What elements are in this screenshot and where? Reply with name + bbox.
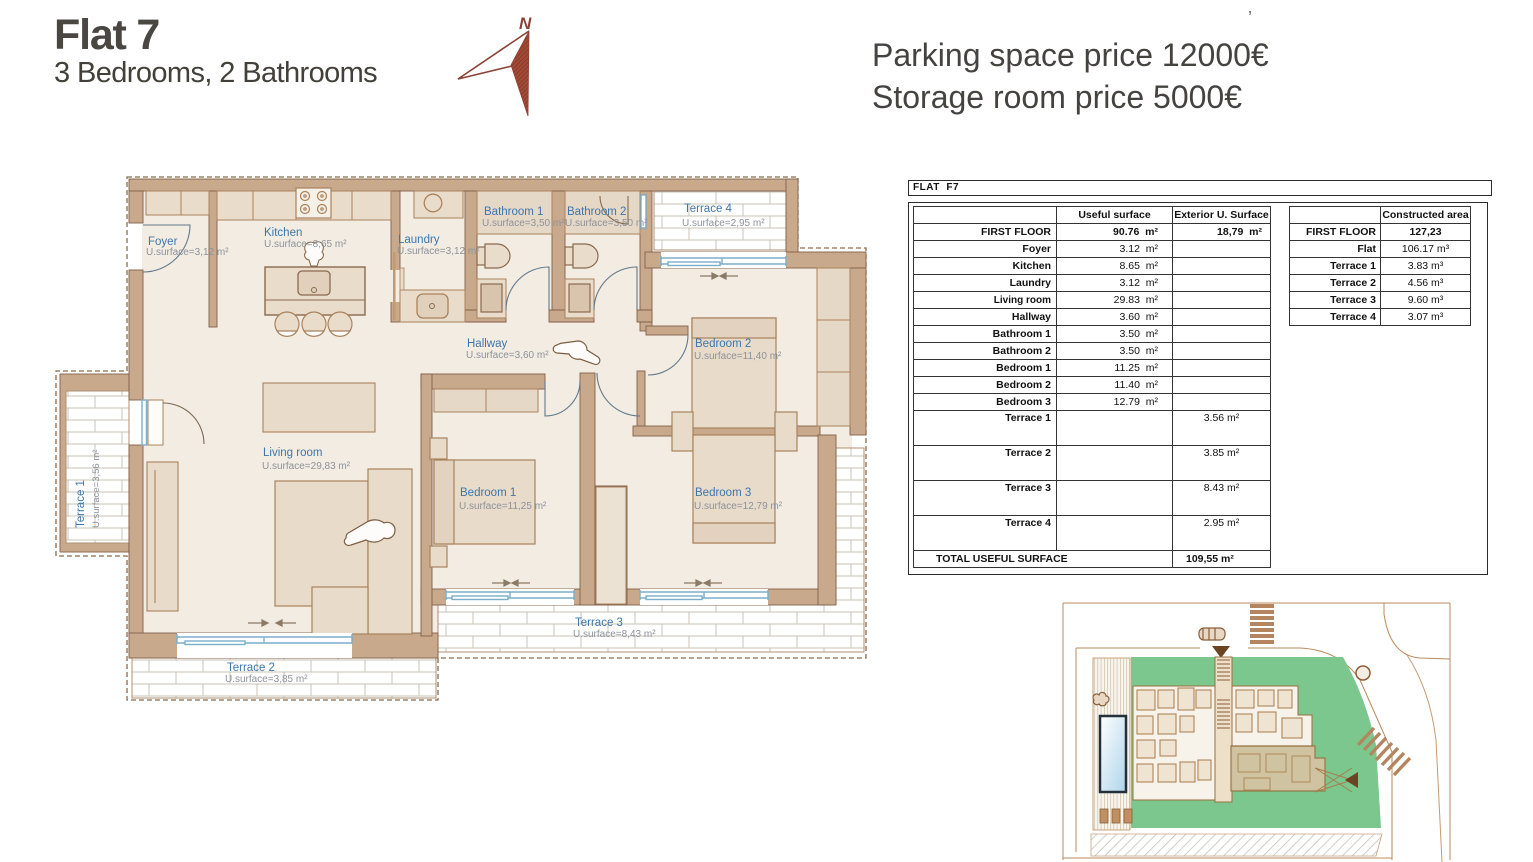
- svg-text:U.surface=3,56 m²: U.surface=3,56 m²: [91, 450, 102, 528]
- svg-text:U.surface=11,25 m²: U.surface=11,25 m²: [459, 501, 547, 512]
- svg-text:U.surface=8,43 m²: U.surface=8,43 m²: [573, 629, 656, 640]
- svg-text:U.surface=3,12 m²: U.surface=3,12 m²: [397, 246, 480, 257]
- svg-text:U.surface=2,95 m²: U.surface=2,95 m²: [682, 218, 765, 229]
- svg-text:U.surface=3,50 m²: U.surface=3,50 m²: [482, 218, 565, 229]
- svg-text:U.surface=8,65 m²: U.surface=8,65 m²: [264, 239, 347, 250]
- svg-text:Terrace 3: Terrace 3: [575, 617, 623, 629]
- svg-text:Bathroom 1: Bathroom 1: [484, 206, 543, 218]
- svg-text:Bathroom 2: Bathroom 2: [567, 206, 626, 218]
- svg-text:Terrace 4: Terrace 4: [684, 203, 733, 215]
- svg-text:Bedroom 2: Bedroom 2: [695, 338, 751, 350]
- svg-text:Hallway: Hallway: [467, 338, 508, 350]
- svg-text:U.surface=3,85 m²: U.surface=3,85 m²: [225, 674, 308, 685]
- svg-text:U.surface=3,60 m²: U.surface=3,60 m²: [466, 350, 549, 361]
- svg-text:Bedroom 1: Bedroom 1: [460, 487, 516, 499]
- svg-text:Bedroom 3: Bedroom 3: [695, 487, 751, 499]
- svg-text:U.surface=12,79 m²: U.surface=12,79 m²: [694, 501, 783, 512]
- svg-text:U.surface=3,12 m²: U.surface=3,12 m²: [146, 247, 229, 258]
- svg-text:Terrace 1: Terrace 1: [75, 480, 87, 528]
- svg-text:Terrace 2: Terrace 2: [227, 662, 275, 674]
- svg-text:U.surface=11,40 m²: U.surface=11,40 m²: [694, 351, 782, 362]
- svg-text:Kitchen: Kitchen: [264, 227, 302, 239]
- svg-text:U.surface=3,50 m²: U.surface=3,50 m²: [565, 218, 648, 229]
- svg-text:Laundry: Laundry: [398, 234, 440, 246]
- svg-text:U.surface=29,83 m²: U.surface=29,83 m²: [262, 461, 351, 472]
- svg-text:Living room: Living room: [263, 447, 322, 459]
